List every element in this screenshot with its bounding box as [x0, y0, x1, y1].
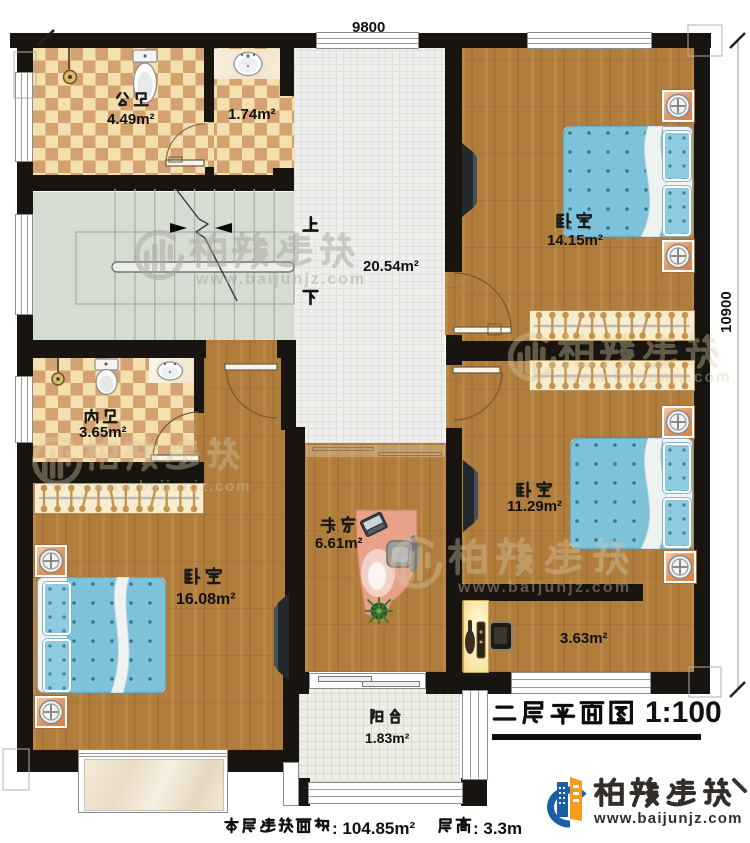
- svg-text:20.54m²: 20.54m²: [363, 258, 419, 275]
- svg-text:1.74m²: 1.74m²: [228, 106, 276, 123]
- svg-text:3.65m²: 3.65m²: [79, 424, 127, 441]
- svg-text:: 3.3m: : 3.3m: [473, 819, 522, 838]
- svg-text:16.08m²: 16.08m²: [176, 591, 236, 608]
- svg-text:1:100: 1:100: [645, 696, 722, 729]
- svg-text:10900: 10900: [718, 291, 735, 333]
- svg-text:www.baijunjz.com: www.baijunjz.com: [565, 369, 732, 386]
- svg-text:: 104.85m²: : 104.85m²: [332, 819, 415, 838]
- svg-text:www.baijunjz.com: www.baijunjz.com: [593, 810, 743, 827]
- svg-text:6.61m²: 6.61m²: [315, 535, 363, 552]
- svg-text:www.baijunjz.com: www.baijunjz.com: [195, 271, 366, 288]
- svg-text:14.15m²: 14.15m²: [547, 232, 603, 249]
- svg-text:3.63m²: 3.63m²: [560, 630, 608, 647]
- svg-text:4.49m²: 4.49m²: [107, 111, 155, 128]
- svg-text:www.baijunjz.com: www.baijunjz.com: [92, 478, 251, 495]
- svg-text:9800: 9800: [352, 19, 385, 36]
- svg-text:www.baijunjz.com: www.baijunjz.com: [457, 579, 631, 596]
- svg-text:11.29m²: 11.29m²: [507, 498, 562, 515]
- svg-text:1.83m²: 1.83m²: [365, 730, 410, 746]
